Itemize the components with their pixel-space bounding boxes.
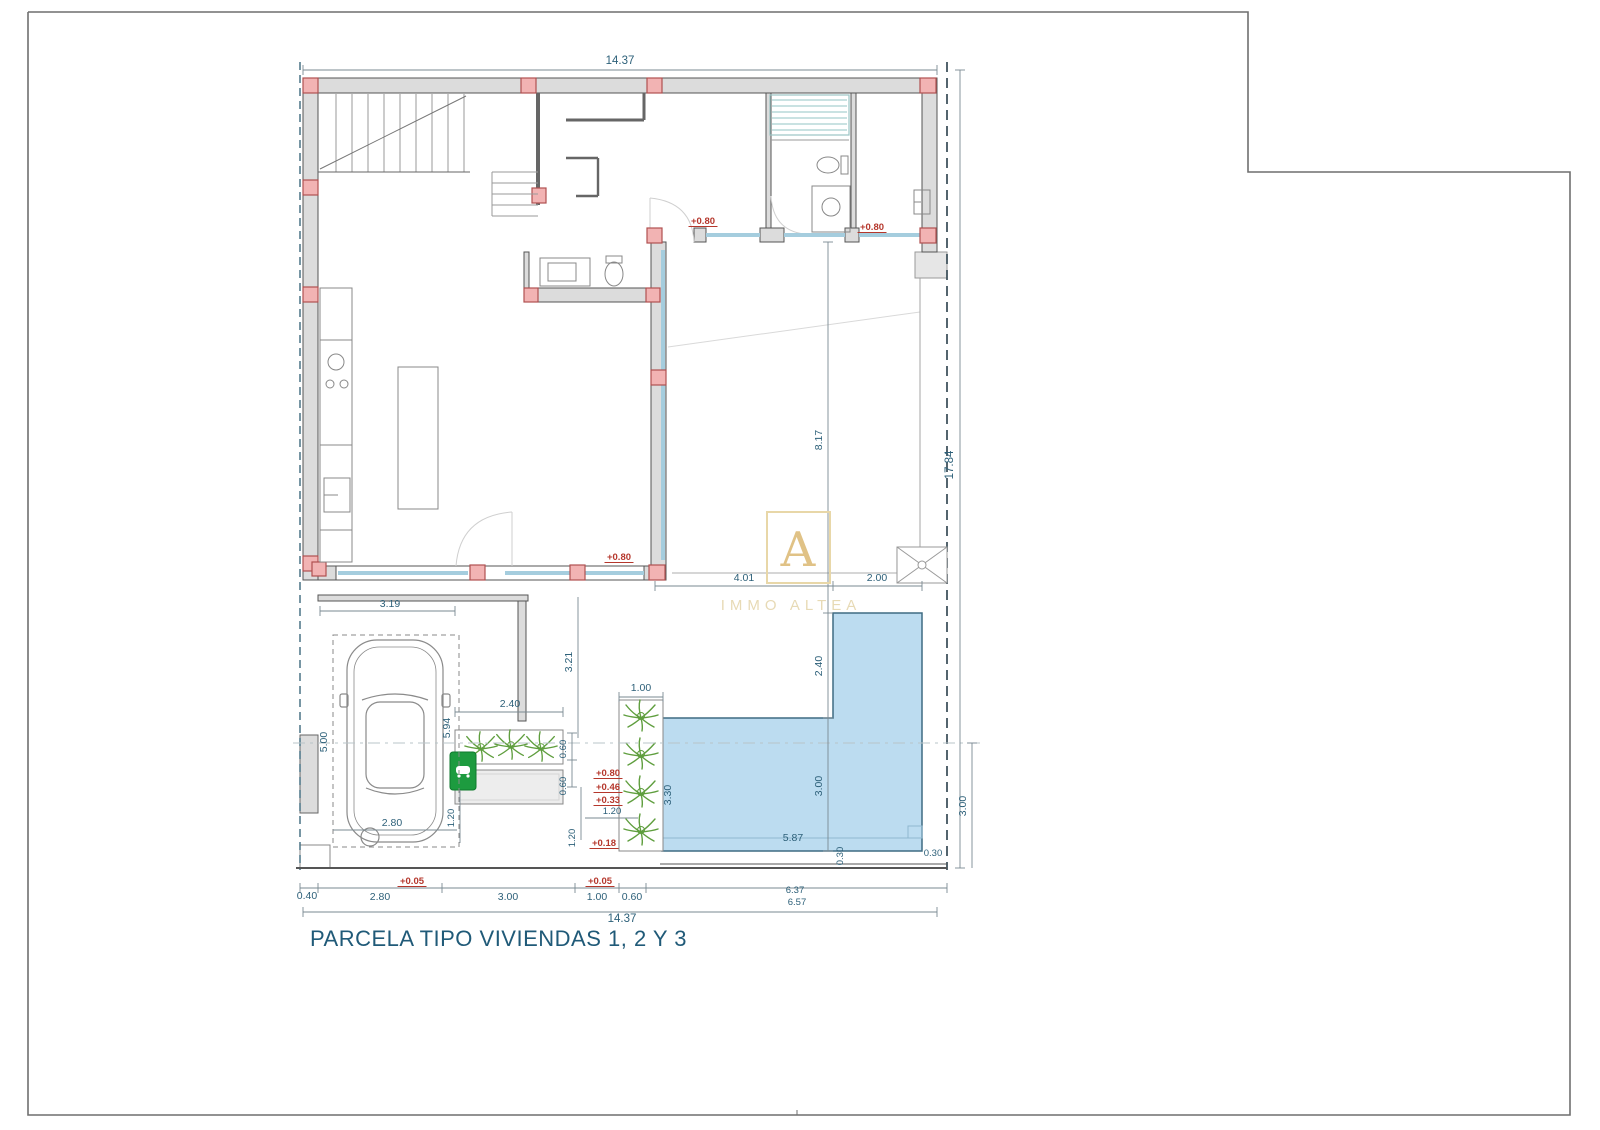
dim-label: 4.01 (734, 572, 755, 584)
swimming-pool (662, 613, 922, 851)
ev-charger-box (450, 752, 476, 790)
dim-label: 3.19 (380, 598, 401, 610)
dim-label: 6.57 (788, 897, 807, 908)
crossed-unit (897, 547, 947, 583)
dim-label: 3.00 (498, 891, 519, 903)
watermark-logo: A IMMO ALTEA (721, 512, 862, 614)
dim-label: 0.60 (558, 777, 569, 796)
dim-label: 3.00 (957, 796, 969, 817)
dim-label: 2.00 (867, 572, 888, 584)
toilet-icon (817, 157, 839, 173)
bathroom-top (770, 95, 850, 232)
dim-label: 2.40 (813, 656, 825, 677)
dim-label: 2.40 (500, 698, 521, 710)
level-label: +0.05 (400, 876, 425, 887)
wc-middle (540, 256, 623, 286)
dim-label: 3.30 (662, 785, 674, 806)
dim-label: 14.37 (606, 55, 635, 67)
vanity (812, 186, 850, 232)
level-label: +0.80 (860, 222, 884, 233)
dim-label: 3.21 (563, 652, 575, 673)
level-label: +0.33 (596, 795, 620, 806)
level-label: +0.80 (607, 552, 631, 563)
level-label: +0.80 (691, 216, 715, 227)
kitchen (320, 288, 438, 562)
level-label: +0.46 (596, 782, 620, 793)
dim-label: 8.17 (813, 430, 825, 451)
dim-label: 2.80 (382, 817, 403, 829)
level-label: +0.80 (596, 768, 620, 779)
plan-sheet: { "title": "PARCELA TIPO VIVIENDAS 1, 2 … (0, 0, 1600, 1130)
level-label: +0.18 (592, 838, 616, 849)
dim-label: 1.20 (567, 829, 578, 848)
dim-label: 1.20 (603, 806, 622, 817)
shower-tray (770, 95, 849, 135)
dim-label: 2.80 (370, 891, 391, 903)
dim-label: 6.37 (786, 885, 805, 896)
dim-label: 1.00 (631, 682, 652, 694)
sink-icon (822, 198, 840, 216)
dim-label: 0.30 (924, 848, 943, 859)
toilet-tank (841, 156, 848, 174)
dim-label: 0.60 (558, 740, 569, 759)
dim-label: 5.87 (783, 832, 804, 844)
plan-title: PARCELA TIPO VIVIENDAS 1, 2 Y 3 (310, 926, 687, 951)
dim-label: 0.30 (835, 847, 846, 866)
dim-label: 1.20 (446, 809, 457, 828)
watermark-letter: A (780, 522, 817, 578)
dim-label: 3.00 (813, 776, 825, 797)
dim-label: 0.40 (297, 890, 318, 902)
dim-label: 1.00 (587, 891, 608, 903)
vertical-planter (619, 700, 663, 851)
staircase (318, 94, 538, 216)
glazing (338, 235, 920, 573)
dim-label: 5.00 (318, 732, 330, 753)
terrace-outline (668, 278, 920, 347)
door-swings (456, 196, 804, 566)
level-label: +0.05 (588, 876, 613, 887)
toilet-icon (605, 262, 623, 286)
dim-label: 5.94 (441, 718, 453, 739)
dim-label: 0.60 (622, 891, 643, 903)
dim-label: 14.37 (608, 913, 637, 925)
entry-walls (538, 93, 644, 205)
balcony-step (915, 252, 947, 278)
kitchen-island (398, 367, 438, 509)
watermark-name: IMMO ALTEA (721, 597, 862, 614)
dim-label: 17.84 (944, 450, 956, 479)
floor-plan-drawing: A IMMO ALTEA 14.3714.3717.848.172.403.00… (0, 0, 1600, 1130)
